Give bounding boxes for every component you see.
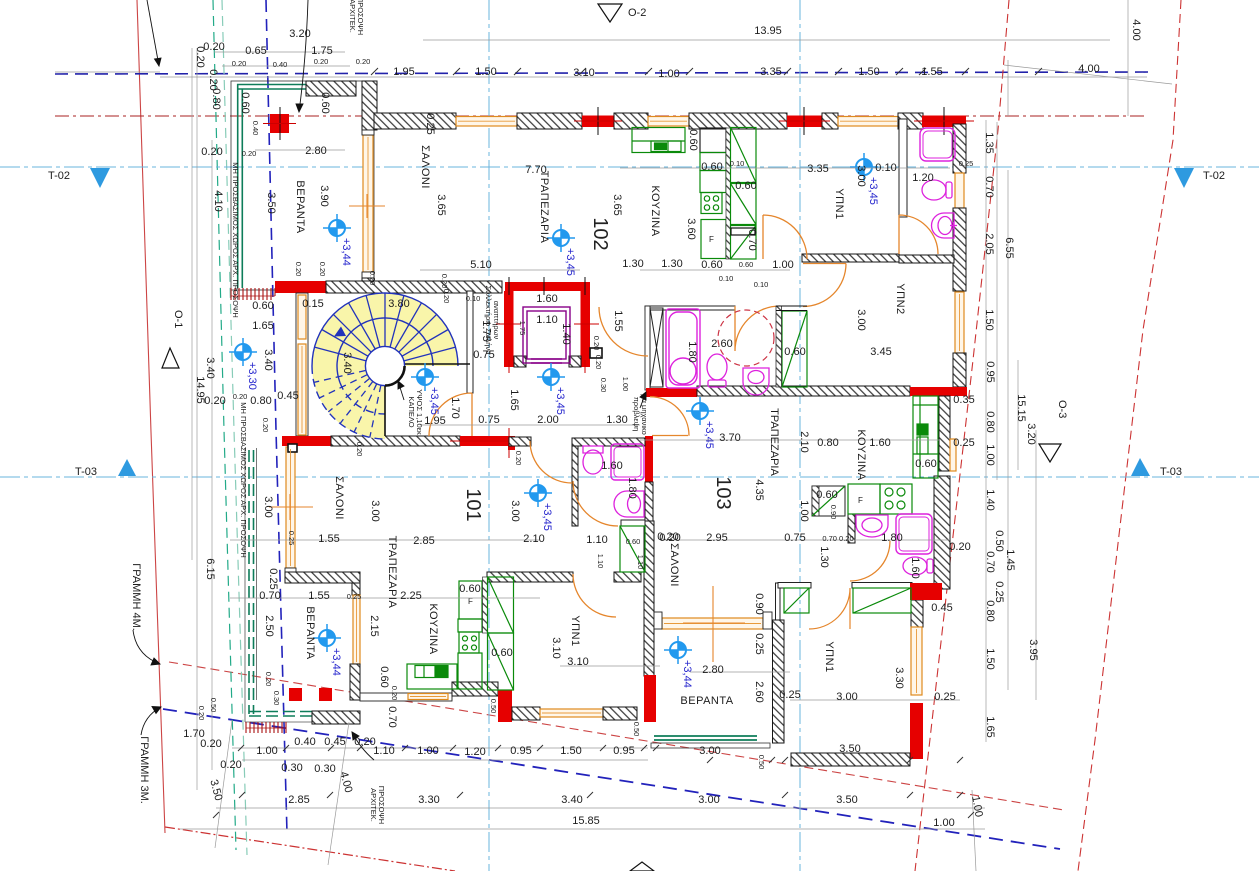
svg-text:+3,44: +3,44	[330, 648, 342, 676]
svg-text:ΒΕΡΑΝΤΑ: ΒΕΡΑΝΤΑ	[294, 180, 306, 233]
svg-text:0.20: 0.20	[657, 531, 678, 543]
svg-text:ΤΡΑΠΕΖΑΡΙΑ: ΤΡΑΠΕΖΑΡΙΑ	[538, 171, 550, 244]
svg-text:0.30: 0.30	[314, 763, 335, 775]
svg-text:1.75: 1.75	[311, 45, 332, 57]
svg-text:1.00: 1.00	[798, 500, 810, 521]
svg-text:0.70: 0.70	[984, 551, 996, 572]
svg-text:6.55: 6.55	[1003, 237, 1015, 258]
svg-text:ΒΕΡΑΝΤΑ: ΒΕΡΑΝΤΑ	[680, 695, 733, 707]
svg-text:0.20: 0.20	[355, 442, 364, 457]
svg-text:0.30: 0.30	[272, 691, 281, 706]
svg-text:4.00: 4.00	[1130, 19, 1142, 40]
svg-text:ΚΑΠΕΛΟ: ΚΑΠΕΛΟ	[407, 396, 416, 427]
svg-text:0.25: 0.25	[953, 437, 974, 449]
svg-text:Συλλεκτήριο Σωλήνα: Συλλεκτήριο Σωλήνα	[484, 285, 493, 355]
svg-text:2.85: 2.85	[288, 794, 309, 806]
svg-text:0.20: 0.20	[368, 271, 377, 286]
svg-text:0.10: 0.10	[730, 159, 745, 168]
svg-text:1.50: 1.50	[560, 745, 581, 757]
svg-text:1.40: 1.40	[560, 323, 572, 344]
svg-text:102: 102	[589, 217, 611, 250]
svg-text:3.00: 3.00	[699, 745, 720, 757]
svg-text:0.25: 0.25	[347, 592, 362, 601]
svg-text:3.20: 3.20	[289, 28, 310, 40]
svg-text:ΑΡΧΙΤΕΚ.: ΑΡΧΙΤΕΚ.	[348, 0, 357, 33]
svg-text:0.45: 0.45	[277, 390, 298, 402]
svg-text:ΜΗ ΠΡΟΣΒΑΣΙΜΟΣ ΧΩΡΟΣ ΑΡΧ. ΠΡΟΣ: ΜΗ ΠΡΟΣΒΑΣΙΜΟΣ ΧΩΡΟΣ ΑΡΧ. ΠΡΟΣΟΨΗ	[231, 162, 240, 318]
svg-text:0.30: 0.30	[599, 378, 608, 393]
svg-text:1.10: 1.10	[596, 554, 605, 569]
svg-text:0.35: 0.35	[953, 394, 974, 406]
svg-text:15.85: 15.85	[572, 815, 600, 827]
svg-text:προβλεψη: προβλεψη	[632, 397, 641, 432]
svg-text:1.00: 1.00	[984, 444, 996, 465]
svg-text:2.50: 2.50	[263, 615, 275, 636]
svg-text:3.00: 3.00	[836, 691, 857, 703]
svg-text:3.20: 3.20	[1025, 423, 1037, 444]
svg-text:0.95: 0.95	[984, 361, 996, 382]
svg-text:0.50: 0.50	[632, 722, 641, 737]
svg-text:0.60: 0.60	[252, 300, 273, 312]
svg-text:O-2: O-2	[628, 7, 646, 19]
svg-text:0.20: 0.20	[197, 706, 206, 721]
svg-text:1.65: 1.65	[508, 389, 520, 410]
svg-text:ΥΨΟΣ 1,10εκ: ΥΨΟΣ 1,10εκ	[415, 389, 424, 435]
svg-text:0.50: 0.50	[489, 699, 498, 714]
svg-text:2.10: 2.10	[798, 431, 810, 452]
svg-text:ΠΡΟΣΟΨΗ: ΠΡΟΣΟΨΗ	[377, 786, 386, 824]
svg-text:1.70: 1.70	[449, 397, 461, 418]
svg-text:1.40: 1.40	[984, 489, 996, 510]
svg-text:1.35: 1.35	[983, 132, 995, 153]
svg-text:0.20: 0.20	[194, 46, 206, 67]
svg-text:ΥΠΝ1: ΥΠΝ1	[823, 641, 835, 672]
svg-text:+3,45: +3,45	[554, 387, 566, 415]
svg-text:3.95: 3.95	[1027, 639, 1039, 660]
svg-text:3.70: 3.70	[719, 432, 740, 444]
svg-text:3.10: 3.10	[573, 67, 594, 79]
svg-text:F: F	[709, 235, 714, 244]
svg-text:0.20: 0.20	[220, 759, 241, 771]
svg-text:3.50: 3.50	[836, 794, 857, 806]
svg-text:ΚΟΥΖΙΝΑ: ΚΟΥΖΙΝΑ	[649, 185, 661, 236]
svg-text:0.20: 0.20	[356, 57, 371, 66]
svg-text:0.80: 0.80	[817, 437, 838, 449]
svg-text:0.60: 0.60	[626, 537, 641, 546]
svg-text:5.10: 5.10	[470, 259, 491, 271]
svg-text:0.70: 0.70	[746, 229, 758, 250]
svg-text:0.20: 0.20	[242, 149, 257, 158]
svg-text:0.20: 0.20	[204, 395, 225, 407]
svg-text:0.20: 0.20	[592, 336, 601, 351]
svg-text:3.10: 3.10	[550, 637, 562, 658]
svg-text:1.55: 1.55	[612, 310, 624, 331]
svg-text:1.00: 1.00	[658, 68, 679, 80]
svg-text:0.20: 0.20	[294, 262, 303, 277]
svg-text:0.20: 0.20	[442, 289, 451, 304]
svg-text:3.35: 3.35	[760, 66, 781, 78]
svg-text:0.60: 0.60	[687, 129, 699, 150]
svg-text:1.80: 1.80	[686, 341, 698, 362]
svg-text:0.60: 0.60	[239, 92, 251, 113]
svg-text:1.00: 1.00	[621, 377, 630, 392]
svg-text:3.00: 3.00	[855, 309, 867, 330]
svg-text:0.60: 0.60	[378, 666, 390, 687]
svg-text:1.10: 1.10	[586, 534, 607, 546]
svg-text:3.80: 3.80	[388, 298, 409, 310]
svg-text:3.65: 3.65	[611, 194, 623, 215]
svg-text:+3,45: +3,45	[428, 387, 440, 415]
svg-text:0.20: 0.20	[261, 418, 270, 433]
svg-text:ΓΡΑΜΜΗ 3Μ.: ΓΡΑΜΜΗ 3Μ.	[138, 736, 150, 804]
svg-text:0.60: 0.60	[491, 647, 512, 659]
svg-text:0.50: 0.50	[209, 698, 218, 713]
svg-text:1.00: 1.00	[933, 817, 954, 829]
svg-text:0.60: 0.60	[739, 260, 754, 269]
svg-text:3.10: 3.10	[567, 656, 588, 668]
svg-text:0.70: 0.70	[386, 706, 398, 727]
svg-text:ΤΡΑΠΕΖΑΡΙΑ: ΤΡΑΠΕΖΑΡΙΑ	[768, 408, 780, 476]
svg-text:1.55: 1.55	[318, 533, 339, 545]
svg-text:2.25: 2.25	[400, 590, 421, 602]
svg-text:0.10: 0.10	[754, 280, 769, 289]
svg-text:1.60: 1.60	[909, 557, 921, 578]
svg-text:3.65: 3.65	[435, 194, 447, 215]
svg-text:0.60: 0.60	[701, 259, 722, 271]
svg-text:3.00: 3.00	[509, 500, 521, 521]
svg-text:1.60: 1.60	[601, 460, 622, 472]
svg-text:0.50: 0.50	[757, 755, 766, 770]
svg-text:0.20: 0.20	[440, 274, 449, 289]
svg-text:0.25: 0.25	[287, 531, 296, 546]
svg-text:1.75: 1.75	[518, 321, 527, 336]
svg-text:0.10: 0.10	[875, 162, 896, 174]
svg-text:3.50: 3.50	[839, 743, 860, 755]
svg-text:ΣΑΛΟΝΙ: ΣΑΛΟΝΙ	[668, 543, 680, 587]
svg-text:ΒΕΡΑΝΤΑ: ΒΕΡΑΝΤΑ	[304, 606, 316, 659]
svg-text:1.60: 1.60	[536, 293, 557, 305]
svg-text:6.15: 6.15	[204, 558, 216, 579]
svg-text:3.00: 3.00	[369, 500, 381, 521]
svg-text:0.25: 0.25	[753, 633, 765, 654]
svg-text:1.30: 1.30	[606, 414, 627, 426]
svg-text:ΤΡΑΠΕΖΑΡΙΑ: ΤΡΑΠΕΖΑΡΙΑ	[386, 536, 398, 609]
svg-text:0.25: 0.25	[959, 159, 974, 168]
svg-text:0.25: 0.25	[267, 568, 279, 589]
svg-text:0.20: 0.20	[390, 686, 399, 701]
svg-text:0.30: 0.30	[281, 762, 302, 774]
svg-text:2.05: 2.05	[983, 233, 995, 254]
svg-text:0.10: 0.10	[719, 274, 734, 283]
svg-text:3.30: 3.30	[418, 794, 439, 806]
svg-text:0.20: 0.20	[232, 59, 247, 68]
svg-text:2.60: 2.60	[753, 681, 765, 702]
svg-text:1.50: 1.50	[984, 648, 996, 669]
svg-text:0.60: 0.60	[701, 161, 722, 173]
svg-text:ΜΗ ΠΡΟΣΒΑΣΙΜΟΣ ΧΩΡΟΣ ΑΡΧ. ΠΡΟΣ: ΜΗ ΠΡΟΣΒΑΣΙΜΟΣ ΧΩΡΟΣ ΑΡΧ. ΠΡΟΣΟΨΗ	[239, 402, 248, 558]
svg-text:F: F	[858, 496, 863, 505]
svg-text:0.60: 0.60	[915, 458, 936, 470]
svg-text:0.75: 0.75	[784, 532, 805, 544]
svg-text:4.35: 4.35	[753, 479, 765, 500]
svg-text:+3,45: +3,45	[703, 421, 715, 449]
svg-text:0.70: 0.70	[259, 590, 280, 602]
svg-text:T-02: T-02	[1203, 170, 1225, 182]
svg-text:13.95: 13.95	[754, 25, 782, 37]
svg-text:2.60: 2.60	[711, 338, 732, 350]
svg-text:1.45: 1.45	[1004, 549, 1016, 570]
svg-text:1.55: 1.55	[921, 66, 942, 78]
svg-text:1.95: 1.95	[393, 66, 414, 78]
svg-text:+3,44: +3,44	[681, 660, 693, 688]
svg-text:ΚΟΥΖΙΝΑ: ΚΟΥΖΙΝΑ	[427, 603, 439, 654]
svg-text:1.50: 1.50	[858, 66, 879, 78]
svg-text:ΓΡΑΜΜΗ 4Μ.: ΓΡΑΜΜΗ 4Μ.	[130, 563, 142, 631]
svg-text:1.65: 1.65	[252, 320, 273, 332]
svg-text:0.80: 0.80	[984, 600, 996, 621]
svg-text:+3,45: +3,45	[564, 248, 576, 276]
svg-text:+3,44: +3,44	[340, 238, 352, 266]
svg-text:0.80: 0.80	[250, 395, 271, 407]
svg-text:ΣΑΛΟΝΙ: ΣΑΛΟΝΙ	[419, 145, 431, 189]
svg-text:1.65: 1.65	[984, 716, 996, 737]
svg-text:ΥΠΝ2: ΥΠΝ2	[894, 283, 906, 314]
svg-text:0.20: 0.20	[949, 541, 970, 553]
svg-text:0.90: 0.90	[753, 593, 765, 614]
svg-text:1.50: 1.50	[983, 309, 995, 330]
svg-text:0.80: 0.80	[210, 88, 222, 109]
svg-text:3.35: 3.35	[807, 163, 828, 175]
svg-text:2.15: 2.15	[368, 615, 380, 636]
svg-text:4.10: 4.10	[212, 190, 224, 211]
svg-text:2.00: 2.00	[537, 414, 558, 426]
svg-text:1.55: 1.55	[308, 590, 329, 602]
svg-text:1.30: 1.30	[818, 546, 830, 567]
svg-text:0.20: 0.20	[201, 146, 222, 158]
svg-text:1.80: 1.80	[881, 532, 902, 544]
svg-text:4.00: 4.00	[1078, 63, 1099, 75]
svg-text:ΑΡΧΙΤΕΚ.: ΑΡΧΙΤΕΚ.	[369, 788, 378, 822]
svg-text:ΠΡΟΣΟΨΗ: ΠΡΟΣΟΨΗ	[356, 0, 365, 35]
svg-text:0.40: 0.40	[251, 121, 260, 136]
svg-text:0.10: 0.10	[466, 294, 481, 303]
svg-text:T-03: T-03	[75, 466, 97, 478]
svg-text:0.20: 0.20	[514, 451, 523, 466]
svg-text:3.00: 3.00	[855, 165, 867, 186]
svg-text:T-02: T-02	[48, 170, 70, 182]
svg-text:+3,30: +3,30	[246, 362, 258, 390]
svg-text:15.15: 15.15	[1015, 394, 1027, 422]
svg-text:1.10: 1.10	[373, 745, 394, 757]
svg-text:0.25: 0.25	[779, 689, 800, 701]
svg-text:0.25: 0.25	[424, 113, 436, 134]
svg-text:3.00: 3.00	[262, 496, 274, 517]
svg-text:1.00: 1.00	[772, 259, 793, 271]
svg-text:0.20: 0.20	[200, 738, 221, 750]
svg-text:0.60: 0.60	[784, 346, 805, 358]
svg-text:3.90: 3.90	[318, 185, 330, 206]
svg-text:0.70: 0.70	[983, 176, 995, 197]
svg-text:0.40: 0.40	[294, 736, 315, 748]
svg-text:101: 101	[462, 488, 484, 521]
svg-text:T-03: T-03	[1160, 466, 1182, 478]
svg-text:1.00: 1.00	[256, 745, 277, 757]
svg-text:2.85: 2.85	[413, 535, 434, 547]
svg-text:1.60: 1.60	[869, 437, 890, 449]
svg-text:O-3: O-3	[1056, 400, 1068, 418]
svg-text:ΚΟΥΖΙΝΑ: ΚΟΥΖΙΝΑ	[855, 429, 867, 480]
svg-text:2.80: 2.80	[702, 664, 723, 676]
svg-text:2.80: 2.80	[305, 145, 326, 157]
svg-text:3.40: 3.40	[341, 352, 353, 373]
svg-text:0.90: 0.90	[829, 505, 838, 520]
svg-text:0.60: 0.60	[459, 583, 480, 595]
svg-text:1.30: 1.30	[622, 258, 643, 270]
svg-text:3.50: 3.50	[265, 192, 277, 213]
svg-text:1.20: 1.20	[464, 746, 485, 758]
svg-text:1.20: 1.20	[912, 172, 933, 184]
svg-text:3.45: 3.45	[870, 346, 891, 358]
svg-text:0.45: 0.45	[324, 736, 345, 748]
svg-text:2.10: 2.10	[523, 533, 544, 545]
svg-text:0.95: 0.95	[613, 745, 634, 757]
svg-text:0.15: 0.15	[302, 298, 323, 310]
svg-text:1.30: 1.30	[661, 258, 682, 270]
svg-text:0.40: 0.40	[273, 60, 288, 69]
svg-text:3.40: 3.40	[561, 794, 582, 806]
svg-text:ΣΑΛΟΝΙ: ΣΑΛΟΝΙ	[333, 476, 345, 520]
svg-text:0.80: 0.80	[984, 411, 996, 432]
svg-text:3.00: 3.00	[698, 794, 719, 806]
svg-text:0.25: 0.25	[934, 691, 955, 703]
svg-text:0.50: 0.50	[993, 530, 1005, 551]
svg-text:0.20: 0.20	[264, 672, 273, 687]
svg-text:ΥΠΝ1: ΥΠΝ1	[833, 188, 845, 219]
svg-text:2.95: 2.95	[706, 532, 727, 544]
svg-text:3.40: 3.40	[262, 349, 274, 370]
svg-text:0.45: 0.45	[931, 602, 952, 614]
svg-text:0.20: 0.20	[314, 57, 329, 66]
svg-text:1.80: 1.80	[626, 477, 638, 498]
svg-text:1.00: 1.00	[417, 745, 438, 757]
svg-text:0.20: 0.20	[318, 262, 327, 277]
svg-text:0.20: 0.20	[594, 355, 603, 370]
svg-text:0.20: 0.20	[233, 392, 248, 401]
svg-text:3.30: 3.30	[893, 667, 905, 688]
svg-text:0.75: 0.75	[478, 414, 499, 426]
svg-text:0.60: 0.60	[319, 92, 331, 113]
svg-text:+3,45: +3,45	[541, 503, 553, 531]
svg-text:103: 103	[712, 476, 734, 509]
svg-text:ΥΠΝ1: ΥΠΝ1	[569, 615, 581, 646]
svg-text:0.60: 0.60	[735, 180, 756, 192]
svg-text:0.65: 0.65	[245, 45, 266, 57]
svg-text:0.60: 0.60	[816, 489, 837, 501]
svg-text:3.60: 3.60	[685, 218, 697, 239]
svg-text:0.70 0.20: 0.70 0.20	[822, 534, 853, 543]
svg-text:1.50: 1.50	[475, 66, 496, 78]
svg-text:1.10: 1.10	[636, 555, 645, 570]
svg-text:0.95: 0.95	[510, 745, 531, 757]
svg-text:+3,45: +3,45	[867, 177, 879, 205]
svg-text:1.10: 1.10	[536, 314, 557, 326]
svg-text:αναπτήρων: αναπτήρων	[492, 301, 501, 340]
svg-text:O-1: O-1	[172, 310, 184, 328]
svg-text:1.95: 1.95	[424, 415, 445, 427]
